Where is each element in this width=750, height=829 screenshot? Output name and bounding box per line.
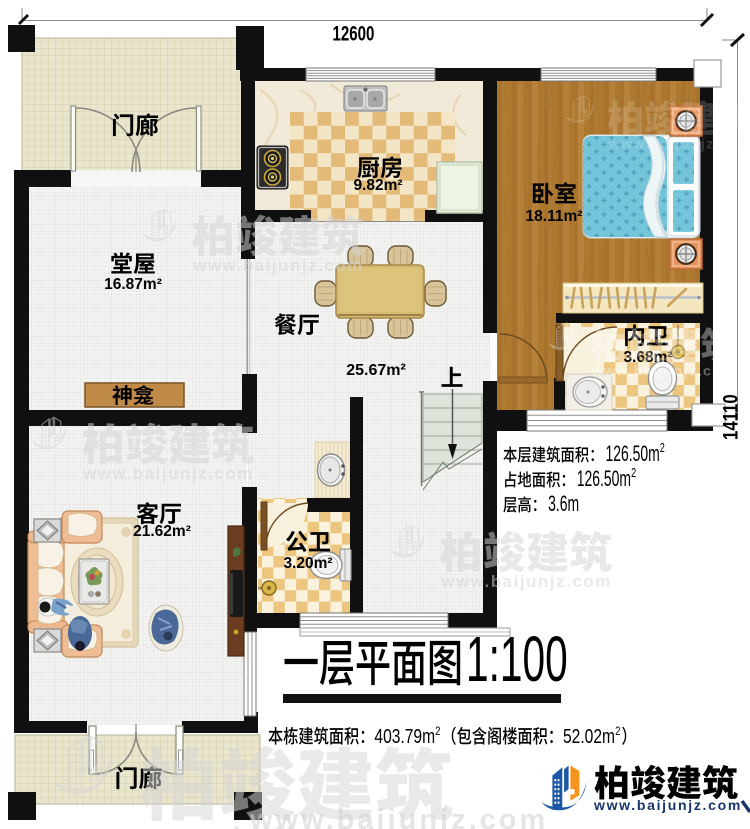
svg-text:14110: 14110 — [720, 394, 743, 440]
svg-text:www.baijunjz.com: www.baijunjz.com — [249, 804, 548, 829]
svg-text:403.79m: 403.79m — [374, 725, 435, 747]
svg-text:21.62m²: 21.62m² — [133, 523, 191, 540]
svg-text:2: 2 — [660, 442, 665, 456]
svg-text:2: 2 — [631, 467, 636, 481]
svg-text:3.6m: 3.6m — [548, 491, 579, 516]
svg-text:25.67m²: 25.67m² — [346, 362, 406, 379]
svg-text:1:100: 1:100 — [466, 624, 568, 696]
svg-text:126.50m: 126.50m — [606, 441, 660, 466]
svg-text:126.50m: 126.50m — [577, 466, 631, 491]
svg-text:3.20m²: 3.20m² — [283, 555, 332, 572]
svg-text:12600: 12600 — [333, 21, 375, 45]
svg-text:18.11m²: 18.11m² — [526, 208, 583, 225]
svg-text:www.baijunjz.com: www.baijunjz.com — [593, 797, 742, 813]
svg-text:2: 2 — [435, 725, 440, 738]
svg-text:16.87m²: 16.87m² — [104, 276, 162, 293]
svg-text:52.02m: 52.02m — [563, 725, 615, 747]
svg-text:2: 2 — [615, 725, 620, 738]
svg-text:9.82m²: 9.82m² — [353, 177, 402, 194]
